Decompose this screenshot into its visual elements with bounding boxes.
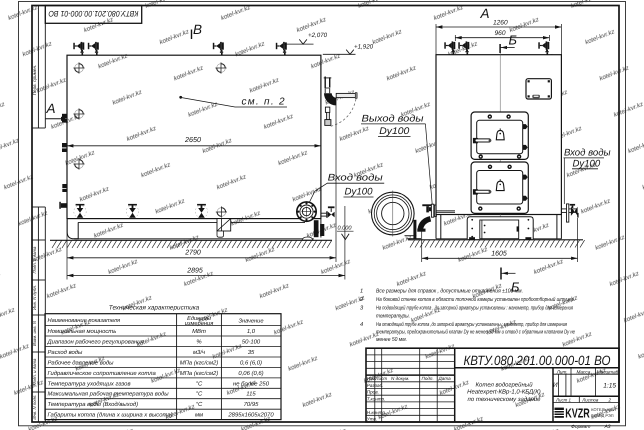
svg-text:А: А [46, 101, 56, 116]
svg-text:°С: °С [196, 401, 203, 408]
svg-text:KVZR: KVZR [565, 405, 590, 420]
svg-text:70/95: 70/95 [244, 401, 259, 408]
svg-text:температуры.: температуры. [376, 313, 410, 319]
svg-text:Формат: Формат [571, 424, 590, 430]
svg-text:N докум.: N докум. [391, 376, 410, 381]
svg-text:1260: 1260 [493, 20, 508, 27]
svg-text:Максимальная рабочая температу: Максимальная рабочая температура воды [48, 391, 170, 398]
svg-text:А3: А3 [604, 424, 611, 430]
svg-text:На боковой стенке котла в обла: На боковой стенке котла в области топочн… [376, 296, 575, 303]
svg-text:Лист: Лист [374, 376, 387, 381]
svg-text:35: 35 [248, 349, 255, 356]
svg-text:менее 50 мм.: менее 50 мм. [376, 337, 407, 343]
svg-text:Температура уходящих газов: Температура уходящих газов [48, 380, 131, 387]
svg-text:Масса: Масса [576, 369, 590, 374]
svg-text:Взам. инв. N: Взам. инв. N [32, 320, 37, 346]
svg-text:Вход воды: Вход воды [564, 148, 611, 159]
svg-text:КВТУ.080.201.00.000-01 ВО: КВТУ.080.201.00.000-01 ВО [464, 353, 612, 368]
svg-text:+1,920: +1,920 [354, 43, 374, 50]
svg-text:Температура воды (Вход/выход): Температура воды (Вход/выход) [48, 401, 139, 408]
svg-text:50-100: 50-100 [242, 339, 261, 346]
svg-text:Выход воды: Выход воды [362, 113, 424, 124]
svg-text:м3/ч: м3/ч [193, 349, 205, 356]
svg-text:Наименование показателя: Наименование показателя [48, 318, 121, 324]
svg-text:2790: 2790 [184, 250, 201, 257]
svg-text:Техническая характеристика: Техническая характеристика [109, 305, 200, 312]
svg-text:Номинальная мощность: Номинальная мощность [48, 328, 117, 335]
svg-text:Подп. и дата: Подп. и дата [32, 246, 37, 274]
svg-text:2: 2 [608, 398, 612, 403]
svg-text:Dy100: Dy100 [379, 126, 410, 137]
svg-text:Габариты котла (длина х ширина: Габариты котла (длина х ширина х высота) [48, 412, 173, 419]
svg-text:960: 960 [494, 30, 505, 37]
svg-text:4: 4 [360, 322, 363, 328]
svg-text:Б: Б [509, 33, 518, 48]
svg-text:Dy100: Dy100 [345, 187, 374, 198]
svg-text:Диапазон рабочего регулировани: Диапазон рабочего регулирования [47, 339, 145, 346]
svg-text:Т.контр.: Т.контр. [367, 396, 386, 401]
svg-text:Подп. и дата: Подп. и дата [32, 358, 37, 386]
svg-text:Инв. N подл.: Инв. N подл. [32, 394, 37, 419]
svg-text:Лит.: Лит. [556, 369, 568, 374]
svg-text:Значение: Значение [239, 319, 264, 325]
svg-text:Подп.: Подп. [422, 376, 434, 381]
svg-text:1:15: 1:15 [603, 382, 616, 389]
svg-text:см. п. 2: см. п. 2 [242, 96, 285, 107]
svg-text:А: А [480, 6, 490, 21]
svg-text:Утв.: Утв. [367, 417, 377, 422]
svg-text:Котел водогрейный: Котел водогрейный [475, 381, 533, 388]
svg-text:0,06 (0,6): 0,06 (0,6) [238, 370, 263, 377]
svg-text:ЗАВОД РЭП: ЗАВОД РЭП [591, 413, 613, 418]
svg-text:температуры, предохранительный: температуры, предохранительный клапан Dу… [376, 328, 575, 335]
svg-text:+2,070: +2,070 [308, 32, 328, 39]
svg-text:Dy100: Dy100 [573, 159, 601, 170]
svg-text:Все размеры для справок , допу: Все размеры для справок , допустимые отк… [376, 287, 523, 294]
svg-text:1: 1 [360, 288, 363, 294]
svg-text:2650: 2650 [184, 135, 201, 144]
svg-text:Гидравлическое сопротивление к: Гидравлическое сопротивление котла [48, 370, 157, 377]
svg-text:Перв. примен.: Перв. примен. [32, 65, 37, 96]
svg-text:1605: 1605 [491, 250, 507, 257]
svg-text:КВТУ.080.201.00.000-01 ВО: КВТУ.080.201.00.000-01 ВО [49, 9, 139, 18]
svg-text:2895: 2895 [186, 267, 203, 274]
svg-text:°С: °С [196, 380, 203, 387]
svg-text:На подводящей трубе котла ,: На подводящей трубе котла , до запорной … [376, 305, 573, 312]
svg-text:На отводящей трубе котла ,до з: На отводящей трубе котла ,до запорной ар… [376, 321, 567, 328]
svg-text:115: 115 [246, 391, 256, 398]
svg-text:Лист: Лист [555, 398, 568, 403]
svg-text:0.000: 0.000 [338, 225, 353, 231]
svg-text:Расход воды: Расход воды [48, 349, 84, 356]
svg-text:0,6 (6,0): 0,6 (6,0) [240, 359, 262, 366]
svg-text:И: И [553, 382, 558, 389]
svg-text:1,0: 1,0 [247, 328, 256, 335]
svg-text:МВт: МВт [192, 328, 206, 335]
svg-text:мм: мм [195, 413, 203, 419]
svg-text:измерения: измерения [185, 321, 213, 327]
svg-text:Дата: Дата [438, 376, 452, 381]
svg-text:Масштаб: Масштаб [597, 369, 619, 374]
svg-text:МПа (кгс/см2): МПа (кгс/см2) [180, 359, 219, 366]
svg-text:Листов: Листов [581, 398, 599, 403]
svg-text:Пров.: Пров. [367, 390, 379, 395]
svg-text:по техническому задание: по техническому задание [468, 396, 542, 403]
svg-text:МПа (кгс/см2): МПа (кгс/см2) [180, 370, 219, 377]
svg-text:Рабочее давление воды: Рабочее давление воды [48, 359, 115, 366]
svg-text:В: В [193, 22, 202, 37]
svg-text:2895х1605х2070: 2895х1605х2070 [227, 412, 274, 419]
svg-text:КОТЕЛЬНЫЙ: КОТЕЛЬНЫЙ [591, 407, 616, 412]
svg-text:не более 250: не более 250 [233, 380, 270, 387]
svg-text:Разраб.: Разраб. [367, 383, 384, 388]
svg-text:Н.контр.: Н.контр. [367, 410, 386, 415]
svg-text:Heatexpert-КВр-1,0-КБД(К): Heatexpert-КВр-1,0-КБД(К) [467, 389, 541, 396]
svg-text:Инв. N дубл.: Инв. N дубл. [32, 285, 37, 310]
svg-text:%: % [196, 339, 201, 346]
svg-text:°С: °С [196, 391, 203, 398]
